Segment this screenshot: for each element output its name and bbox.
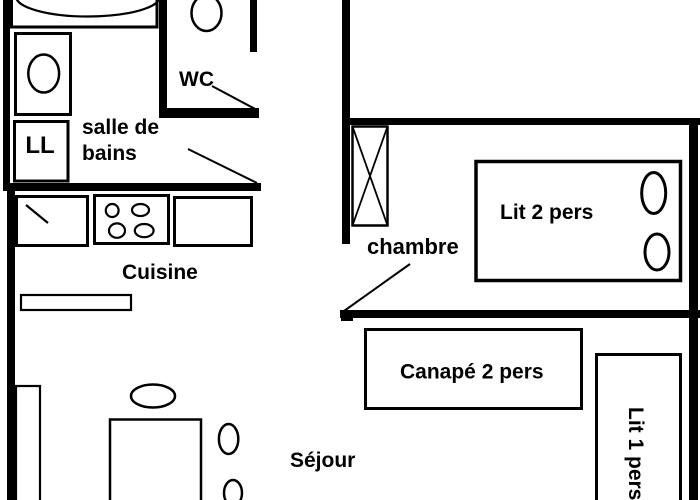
svg-text:salle de: salle de bbox=[82, 116, 159, 139]
svg-text:WC: WC bbox=[179, 68, 214, 91]
svg-text:Canapé 2 pers: Canapé 2 pers bbox=[400, 361, 544, 384]
svg-text:bains: bains bbox=[82, 142, 137, 165]
svg-text:Lit 2 pers: Lit 2 pers bbox=[500, 201, 593, 224]
svg-text:Cuisine: Cuisine bbox=[122, 261, 198, 284]
svg-text:chambre: chambre bbox=[367, 234, 459, 259]
svg-text:LL: LL bbox=[25, 132, 54, 159]
svg-text:Lit 1 pers: Lit 1 pers bbox=[624, 407, 647, 500]
svg-text:Séjour: Séjour bbox=[290, 449, 355, 472]
